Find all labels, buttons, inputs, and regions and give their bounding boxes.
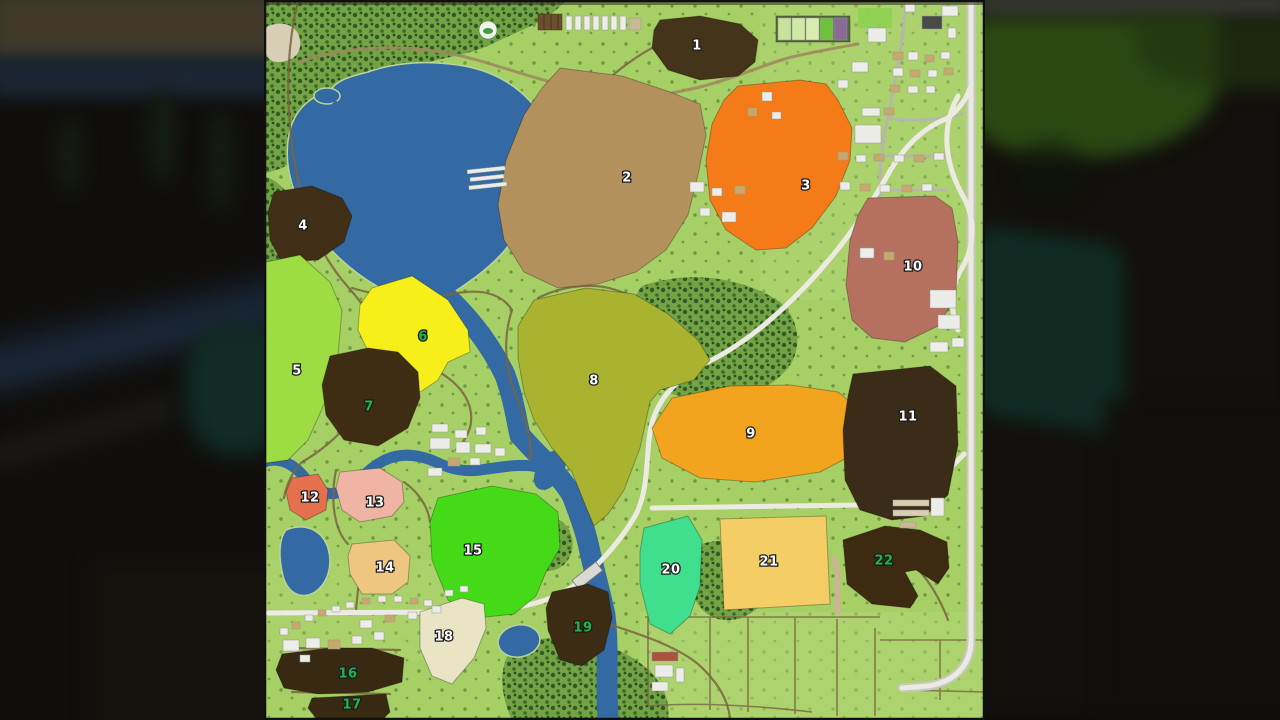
field-2-label: 2 xyxy=(622,171,632,186)
field-18-label: 18 xyxy=(434,630,453,645)
greenhouse-plot-1 xyxy=(778,18,791,40)
greenhouse-plot-5 xyxy=(834,18,847,40)
field-6-label: 6 xyxy=(418,330,428,345)
field-19-label: 19 xyxy=(573,621,592,636)
field-1-label: 1 xyxy=(692,39,702,54)
field-17-label: 17 xyxy=(342,698,361,713)
map-screen: 12345678910111213141516171819202122 xyxy=(0,0,1280,720)
field-11-label: 11 xyxy=(898,410,917,425)
field-4-label: 4 xyxy=(298,219,308,234)
silo-row xyxy=(566,16,641,30)
field-5-label: 5 xyxy=(292,364,302,379)
field-16-label: 16 xyxy=(338,667,357,682)
field-11-area[interactable] xyxy=(843,366,958,520)
field-3-label: 3 xyxy=(801,179,811,194)
field-21-label: 21 xyxy=(759,555,778,570)
pond-west xyxy=(280,527,330,596)
lawn-plot xyxy=(858,8,892,28)
field-13-label: 13 xyxy=(365,496,384,511)
blurred-background-left xyxy=(0,0,264,720)
blurred-background-right xyxy=(985,0,1280,720)
field-9-label: 9 xyxy=(746,427,756,442)
greenhouse-plot-3 xyxy=(806,18,819,40)
field-15-label: 15 xyxy=(463,544,482,559)
field-1-area[interactable] xyxy=(652,16,758,80)
field-22-label: 22 xyxy=(874,554,893,569)
greenhouse-plots xyxy=(776,16,850,42)
field-12-label: 12 xyxy=(300,491,319,506)
field-10-label: 10 xyxy=(903,260,922,275)
greenhouse-plot-4 xyxy=(820,18,833,40)
farm-map: 12345678910111213141516171819202122 xyxy=(264,0,985,720)
greenhouse-plot-2 xyxy=(792,18,805,40)
field-14-label: 14 xyxy=(375,561,394,576)
field-20-label: 20 xyxy=(661,563,680,578)
lake-piers xyxy=(467,166,507,190)
field-7-label: 7 xyxy=(364,400,374,415)
field-8-label: 8 xyxy=(589,374,599,389)
